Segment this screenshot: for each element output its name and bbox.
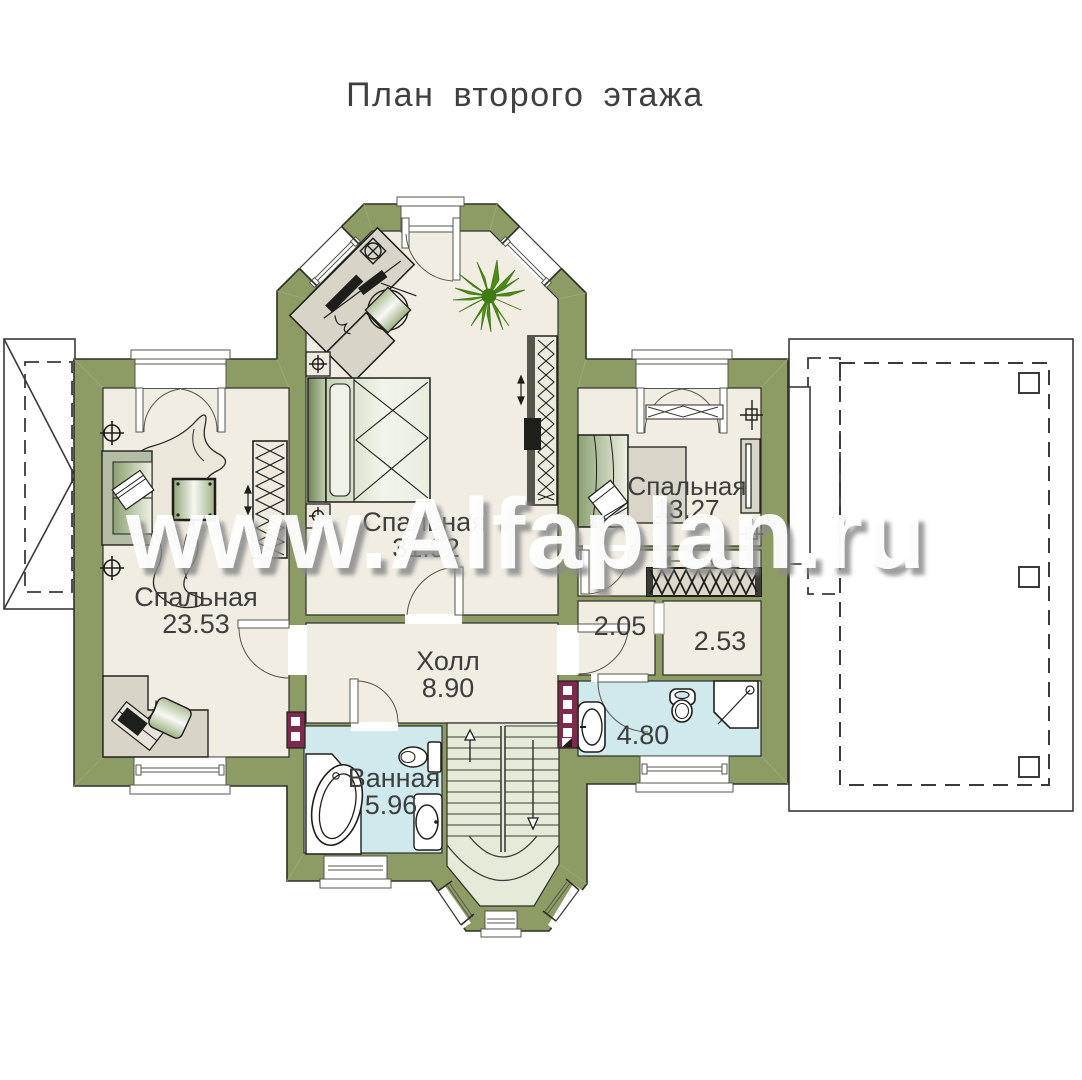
svg-text:23.53: 23.53 bbox=[162, 609, 230, 639]
svg-text:2.53: 2.53 bbox=[694, 626, 747, 656]
svg-text:План второго этажа: План второго этажа bbox=[346, 76, 704, 114]
svg-text:Холл: Холл bbox=[416, 646, 480, 676]
svg-text:4.80: 4.80 bbox=[617, 720, 670, 750]
svg-text:Ванная: Ванная bbox=[348, 763, 440, 793]
svg-text:www.Alfaplan.ru: www.Alfaplan.ru bbox=[125, 478, 927, 590]
svg-text:5.96: 5.96 bbox=[365, 790, 418, 820]
svg-text:8.90: 8.90 bbox=[422, 673, 475, 703]
svg-text:2.05: 2.05 bbox=[594, 611, 647, 641]
